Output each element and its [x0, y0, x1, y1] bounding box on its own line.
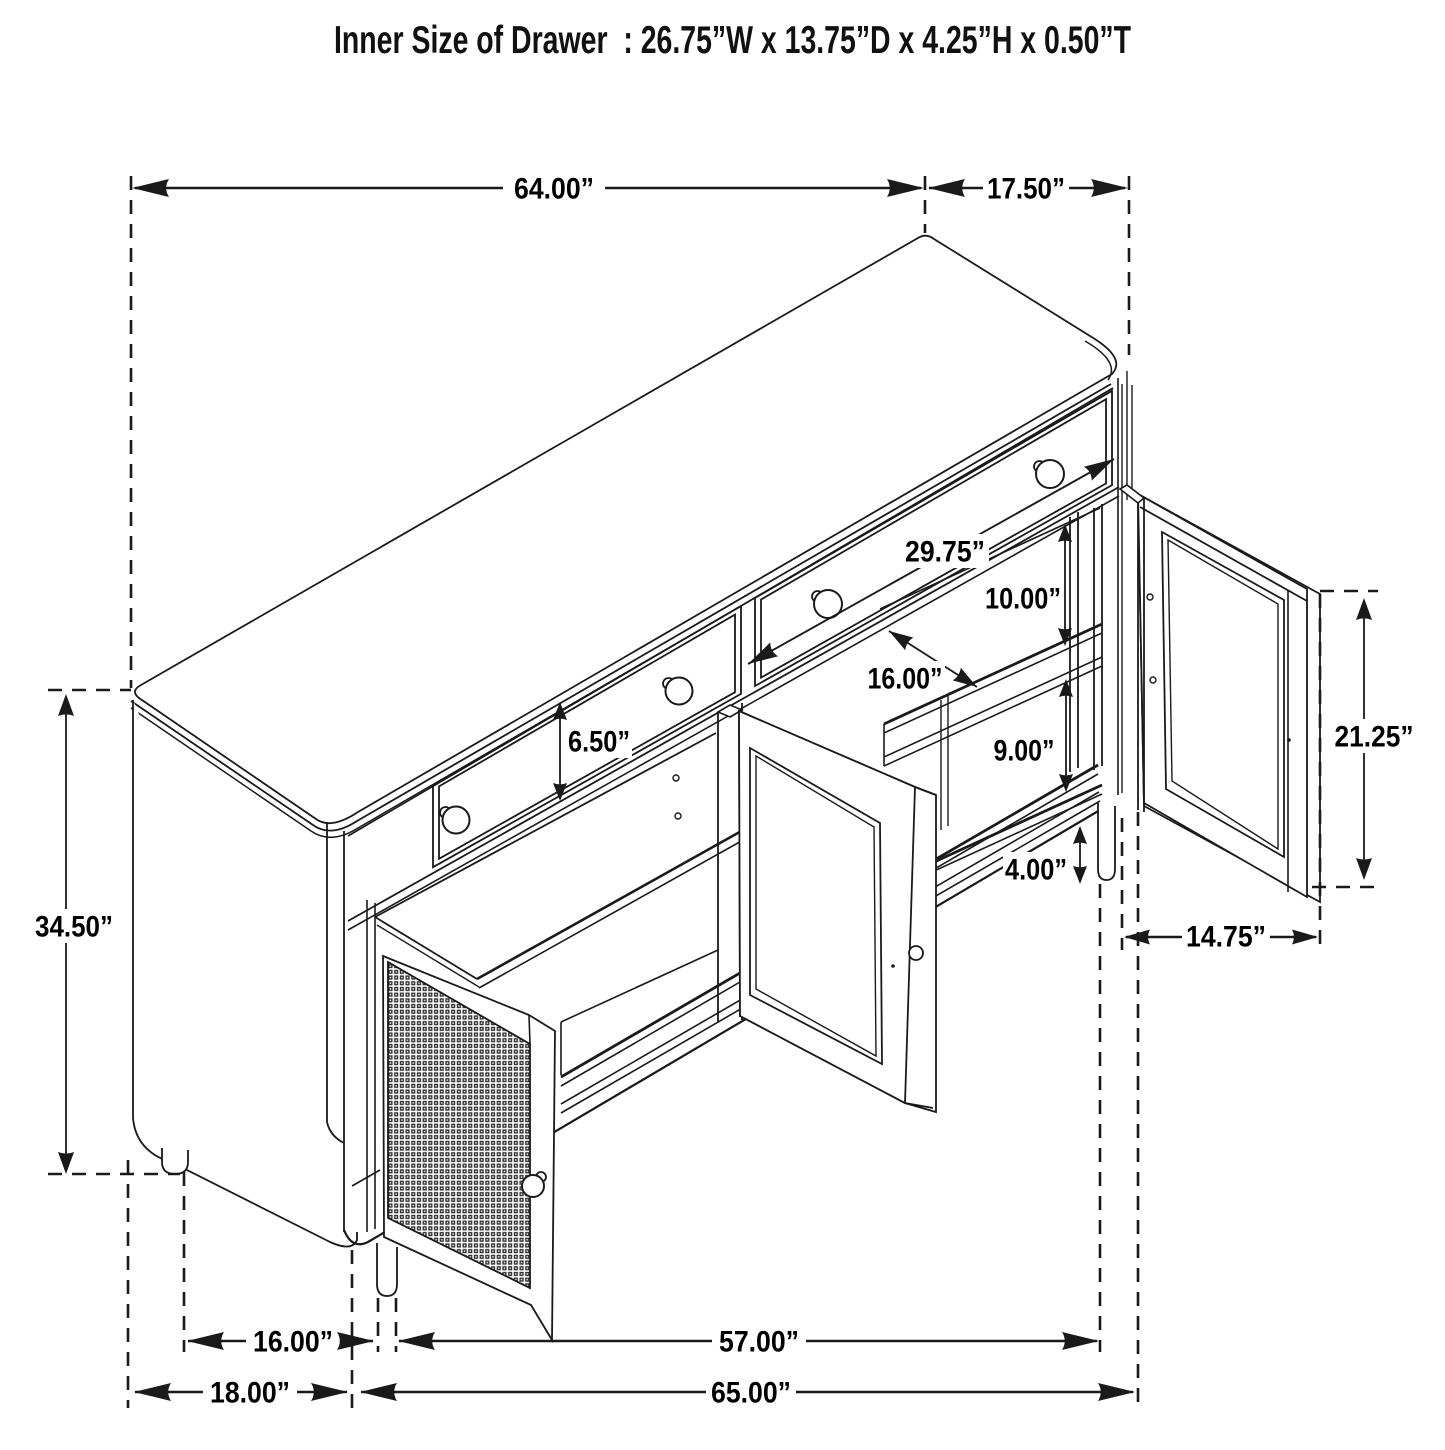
svg-text:14.75”: 14.75” [1186, 921, 1266, 954]
svg-text:57.00”: 57.00” [719, 1326, 799, 1359]
svg-text:10.00”: 10.00” [985, 583, 1061, 616]
svg-text:34.50”: 34.50” [35, 911, 113, 944]
svg-text:Inner Size of Drawer : 26.75”: Inner Size of Drawer : 26.75”W x 13.75”D… [334, 19, 1131, 62]
svg-text:16.00”: 16.00” [868, 663, 943, 696]
svg-text:17.50”: 17.50” [987, 173, 1065, 206]
svg-text:9.00”: 9.00” [994, 735, 1055, 768]
svg-text:64.00”: 64.00” [514, 173, 594, 206]
svg-text:65.00”: 65.00” [711, 1377, 791, 1410]
svg-text:29.75”: 29.75” [905, 536, 985, 569]
svg-text:21.25”: 21.25” [1335, 721, 1414, 754]
svg-text:4.00”: 4.00” [1005, 854, 1067, 887]
svg-text:6.50”: 6.50” [568, 726, 630, 759]
svg-text:18.00”: 18.00” [210, 1377, 290, 1410]
svg-text:16.00”: 16.00” [253, 1326, 333, 1359]
